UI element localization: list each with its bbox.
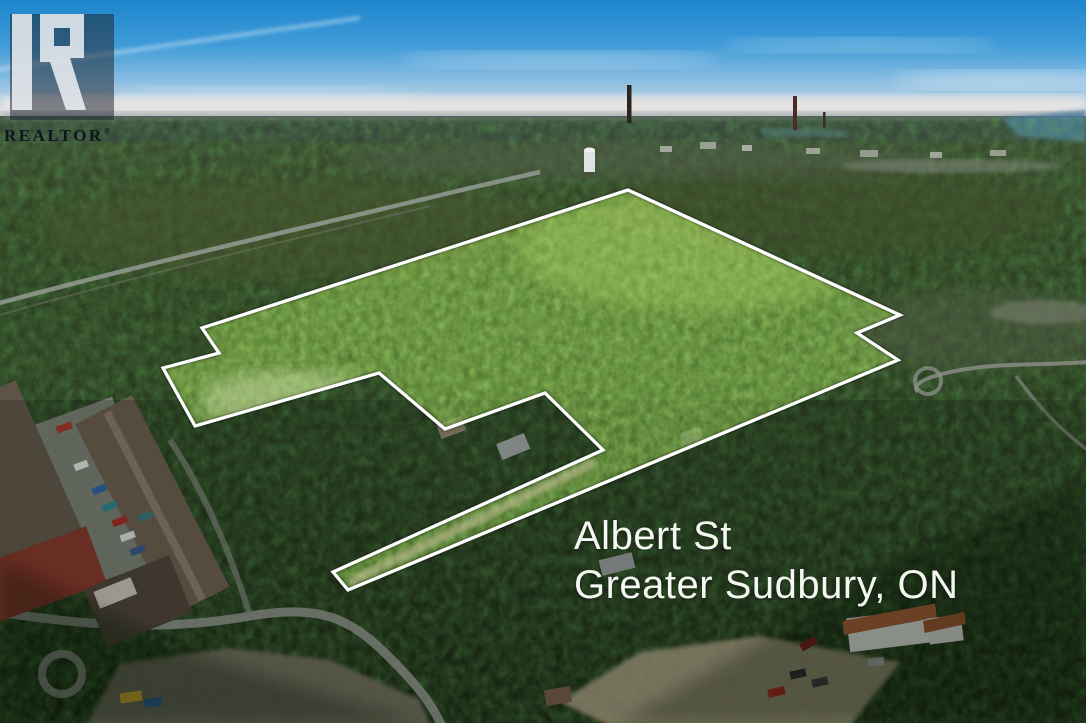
realtor-block-r-icon (10, 14, 86, 110)
realtor-logo-box (10, 14, 114, 120)
address-caption: Albert St Greater Sudbury, ON (574, 512, 958, 610)
registered-symbol: ® (104, 126, 111, 136)
aerial-photo (0, 0, 1086, 723)
realtor-watermark: REALTOR® (10, 14, 128, 146)
address-line1: Albert St (574, 512, 958, 561)
water-tower (584, 148, 595, 173)
address-line2: Greater Sudbury, ON (574, 561, 958, 610)
realtor-wordmark: REALTOR® (4, 126, 144, 146)
listing-photo: REALTOR® Albert St Greater Sudbury, ON (0, 0, 1086, 723)
landscape (0, 85, 1086, 723)
